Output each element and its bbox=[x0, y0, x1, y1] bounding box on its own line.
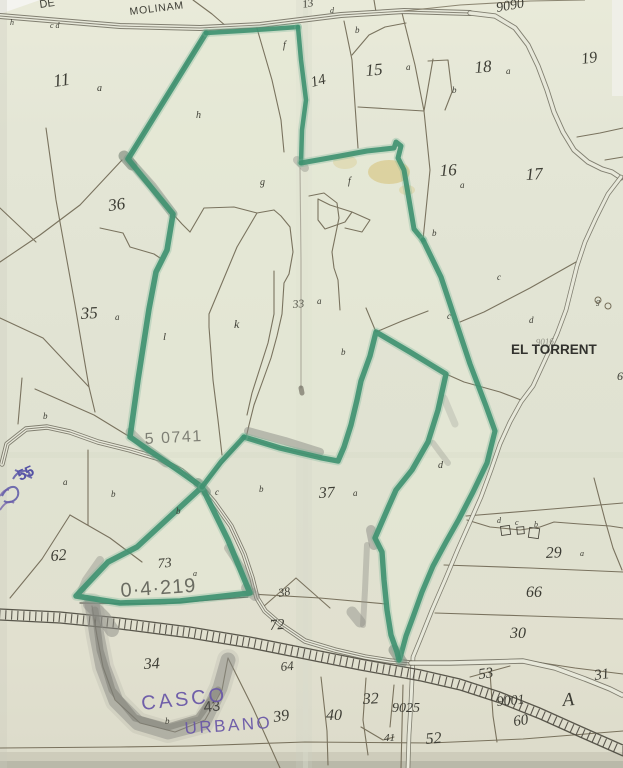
svg-text:a: a bbox=[115, 312, 120, 322]
svg-text:31: 31 bbox=[592, 666, 610, 684]
svg-text:9001: 9001 bbox=[496, 693, 525, 710]
svg-text:60: 60 bbox=[512, 712, 530, 730]
svg-text:h: h bbox=[10, 18, 14, 27]
svg-text:a: a bbox=[460, 180, 465, 190]
svg-text:30: 30 bbox=[509, 625, 526, 642]
svg-text:19: 19 bbox=[580, 49, 598, 68]
svg-text:18: 18 bbox=[474, 57, 493, 77]
svg-text:l: l bbox=[163, 331, 166, 343]
svg-text:a: a bbox=[353, 488, 358, 498]
svg-text:g: g bbox=[596, 297, 600, 306]
svg-text:17: 17 bbox=[525, 164, 544, 184]
svg-text:6: 6 bbox=[617, 369, 623, 383]
svg-text:66: 66 bbox=[526, 584, 542, 601]
svg-text:41: 41 bbox=[384, 732, 395, 744]
svg-text:d: d bbox=[529, 315, 534, 325]
svg-text:39: 39 bbox=[271, 707, 290, 726]
svg-text:53: 53 bbox=[477, 665, 494, 683]
svg-text:a: a bbox=[506, 66, 511, 76]
svg-text:b: b bbox=[534, 520, 538, 529]
svg-text:37: 37 bbox=[317, 484, 336, 502]
svg-text:b: b bbox=[111, 489, 116, 499]
svg-text:72: 72 bbox=[269, 617, 286, 634]
svg-text:15: 15 bbox=[365, 60, 384, 80]
svg-text:c: c bbox=[515, 518, 519, 527]
svg-text:c: c bbox=[215, 487, 219, 497]
svg-text:40: 40 bbox=[326, 707, 342, 724]
svg-text:b: b bbox=[432, 228, 437, 238]
svg-text:34: 34 bbox=[142, 655, 160, 673]
svg-text:c: c bbox=[497, 272, 501, 282]
svg-text:b: b bbox=[341, 347, 346, 357]
svg-text:g: g bbox=[260, 177, 265, 188]
svg-text:a: a bbox=[406, 62, 411, 72]
svg-text:11: 11 bbox=[52, 69, 71, 91]
svg-text:k: k bbox=[234, 317, 240, 331]
svg-text:35: 35 bbox=[79, 303, 98, 323]
svg-text:EL TORRENT: EL TORRENT bbox=[511, 342, 598, 357]
svg-text:a: a bbox=[317, 296, 322, 306]
svg-text:a: a bbox=[580, 549, 584, 558]
svg-text:73: 73 bbox=[157, 556, 172, 572]
svg-text:52: 52 bbox=[425, 730, 442, 748]
svg-text:a: a bbox=[97, 83, 102, 94]
svg-text:33: 33 bbox=[291, 298, 305, 311]
svg-text:29: 29 bbox=[545, 544, 562, 562]
svg-text:5 0741: 5 0741 bbox=[144, 428, 203, 448]
svg-text:b: b bbox=[452, 85, 457, 95]
svg-text:b: b bbox=[165, 716, 170, 726]
svg-text:b: b bbox=[259, 484, 264, 494]
svg-text:b: b bbox=[43, 411, 48, 421]
svg-text:13: 13 bbox=[301, 0, 314, 11]
svg-text:a: a bbox=[63, 477, 68, 487]
svg-text:62: 62 bbox=[50, 547, 67, 565]
svg-text:9025: 9025 bbox=[392, 701, 420, 716]
svg-text:b: b bbox=[355, 25, 360, 35]
svg-text:64: 64 bbox=[280, 658, 295, 674]
svg-text:b: b bbox=[176, 506, 181, 516]
svg-text:36: 36 bbox=[106, 194, 127, 215]
svg-text:c d: c d bbox=[50, 21, 61, 30]
svg-text:h: h bbox=[196, 110, 201, 121]
svg-text:32: 32 bbox=[361, 690, 379, 708]
svg-text:16: 16 bbox=[439, 160, 457, 180]
svg-text:c: c bbox=[447, 311, 451, 321]
svg-text:38: 38 bbox=[276, 584, 291, 600]
